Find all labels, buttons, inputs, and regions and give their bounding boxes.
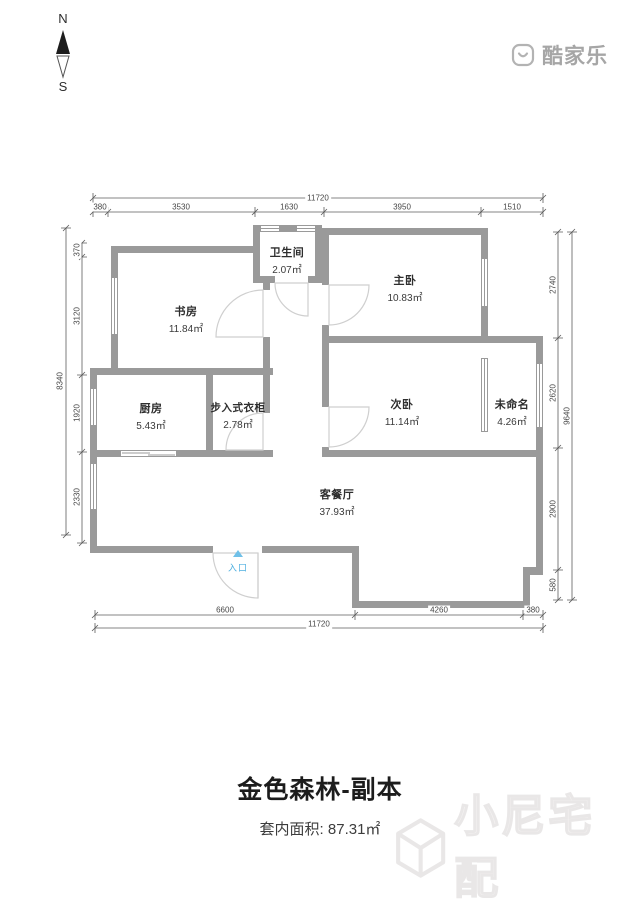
room-name: 卫生间 xyxy=(270,244,305,260)
room-area: 10.83㎡ xyxy=(387,289,422,304)
room-area: 2.78㎡ xyxy=(211,416,266,431)
room-area: 11.14㎡ xyxy=(385,413,419,428)
second-bedroom-door xyxy=(329,407,369,447)
kujiale-logo-text: 酷家乐 xyxy=(542,40,608,70)
room-label-unnamed: 未命名 4.26㎡ xyxy=(495,396,530,428)
dim-top-seg: 1510 xyxy=(501,203,523,212)
room-name: 步入式衣柜 xyxy=(211,400,266,415)
entrance-label: 入口 xyxy=(228,561,248,574)
dim-top-seg: 3950 xyxy=(391,203,413,212)
entrance-door xyxy=(213,553,258,598)
plan-area-summary: 套内面积: 87.31㎡ xyxy=(0,818,640,839)
room-name: 客餐厅 xyxy=(319,486,354,502)
dim-right-seg: 2900 xyxy=(549,498,558,520)
room-label-master-bedroom: 主卧 10.83㎡ xyxy=(387,272,422,304)
dim-right-seg: 580 xyxy=(549,576,558,593)
room-name: 次卧 xyxy=(385,396,419,412)
dim-bottom-seg: 380 xyxy=(524,606,541,615)
room-name: 未命名 xyxy=(495,396,530,412)
room-area: 4.26㎡ xyxy=(495,413,530,428)
floorplan-page: 小尼宅配 N xyxy=(0,0,640,905)
dim-bottom-seg: 6600 xyxy=(214,606,236,615)
room-area: 11.84㎡ xyxy=(169,320,203,335)
dim-left-total: 8340 xyxy=(56,370,65,392)
dim-bottom-seg: 4260 xyxy=(428,606,450,615)
room-area: 37.93㎡ xyxy=(319,503,354,518)
plan-title: 金色森林-副本 xyxy=(0,770,640,806)
kujiale-logo: 酷家乐 xyxy=(511,40,608,70)
room-area: 2.07㎡ xyxy=(270,261,305,276)
kujiale-logo-icon xyxy=(511,43,535,67)
dim-right-seg: 2620 xyxy=(549,382,558,404)
area-label: 套内面积: xyxy=(260,821,324,838)
room-label-walkin-closet: 步入式衣柜 2.78㎡ xyxy=(211,400,266,431)
dim-top-seg: 3530 xyxy=(170,203,192,212)
room-name: 书房 xyxy=(169,303,203,319)
room-label-living-dining: 客餐厅 37.93㎡ xyxy=(319,486,354,518)
dim-bottom-total: 11720 xyxy=(306,620,332,629)
dim-right-seg: 2740 xyxy=(549,274,558,296)
dim-top-seg: 380 xyxy=(91,203,108,212)
master-door xyxy=(329,285,369,325)
dim-left-seg: 2330 xyxy=(73,486,82,508)
room-area: 5.43㎡ xyxy=(136,417,165,432)
dim-top-seg: 1630 xyxy=(278,203,300,212)
dim-left-seg: 1920 xyxy=(73,402,82,424)
dim-right-total: 9640 xyxy=(563,405,572,427)
compass-icon xyxy=(56,30,70,77)
dim-left-seg: 370 xyxy=(73,241,82,258)
room-name: 主卧 xyxy=(387,272,422,288)
room-label-second-bedroom: 次卧 11.14㎡ xyxy=(385,396,419,428)
dim-top-total: 11720 xyxy=(305,194,331,203)
room-label-bathroom: 卫生间 2.07㎡ xyxy=(270,244,305,276)
study-door xyxy=(216,290,263,337)
compass-south-label: S xyxy=(53,79,73,94)
room-name: 厨房 xyxy=(136,400,165,416)
bathroom-door xyxy=(275,283,308,316)
room-label-kitchen: 厨房 5.43㎡ xyxy=(136,400,165,432)
room-label-study: 书房 11.84㎡ xyxy=(169,303,203,335)
area-value: 87.31㎡ xyxy=(328,821,381,838)
dim-left-seg: 3120 xyxy=(73,305,82,327)
